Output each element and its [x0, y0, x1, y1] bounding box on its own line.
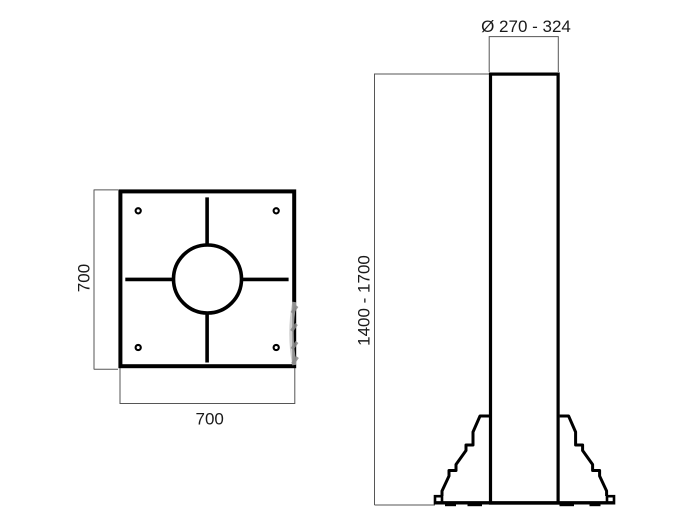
svg-text:1400 - 1700: 1400 - 1700 [354, 255, 373, 346]
svg-text:Ø 270 - 324: Ø 270 - 324 [481, 17, 571, 36]
svg-text:700: 700 [196, 410, 224, 429]
svg-text:700: 700 [75, 264, 94, 292]
